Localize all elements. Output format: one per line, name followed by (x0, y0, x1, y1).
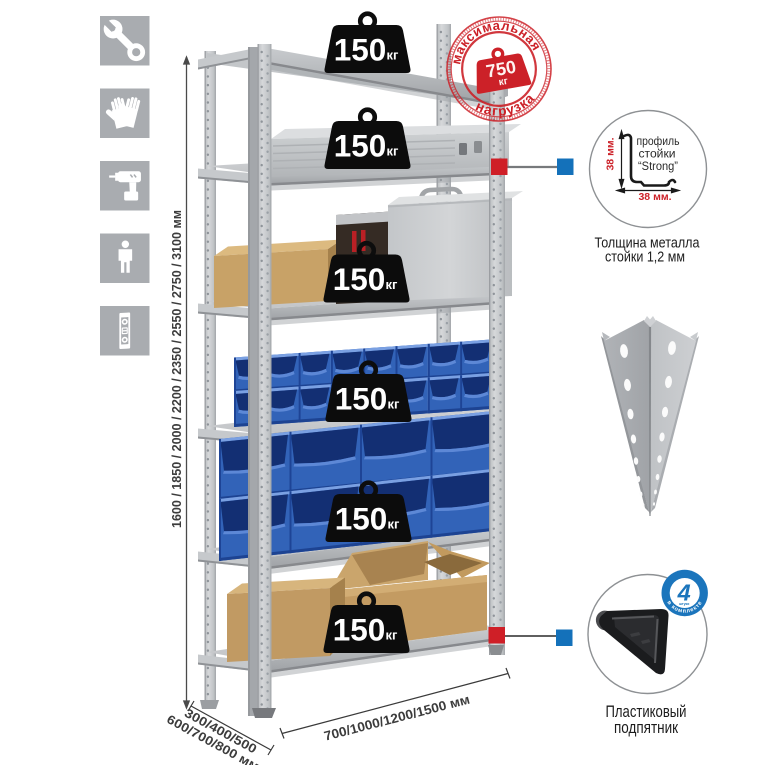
svg-text:кг: кг (388, 397, 401, 412)
svg-text:“Strong”: “Strong” (638, 161, 678, 173)
svg-text:150: 150 (334, 128, 387, 164)
svg-text:150: 150 (335, 501, 388, 537)
svg-text:кг: кг (498, 76, 509, 88)
svg-text:кг: кг (387, 48, 400, 63)
svg-text:профиль: профиль (637, 136, 680, 148)
svg-text:150: 150 (335, 381, 388, 417)
svg-text:кг: кг (388, 517, 401, 532)
svg-text:кг: кг (386, 628, 399, 643)
svg-text:кг: кг (386, 277, 399, 292)
svg-text:1600 / 1850 / 2000 / 2200 / 23: 1600 / 1850 / 2000 / 2200 / 2350 / 2550 … (169, 210, 184, 528)
svg-text:150: 150 (334, 32, 387, 68)
svg-text:штуки: штуки (679, 602, 689, 606)
svg-text:стойки: стойки (639, 149, 676, 161)
svg-text:150: 150 (333, 261, 386, 297)
svg-text:38 мм.: 38 мм. (605, 137, 617, 170)
svg-text:700/1000/1200/1500 мм: 700/1000/1200/1500 мм (322, 692, 471, 744)
svg-text:стойки 1,2 мм: стойки 1,2 мм (605, 250, 685, 266)
svg-text:150: 150 (333, 612, 386, 648)
svg-text:подпятник: подпятник (614, 718, 679, 737)
svg-text:38 мм.: 38 мм. (638, 191, 671, 203)
svg-text:кг: кг (387, 144, 400, 159)
